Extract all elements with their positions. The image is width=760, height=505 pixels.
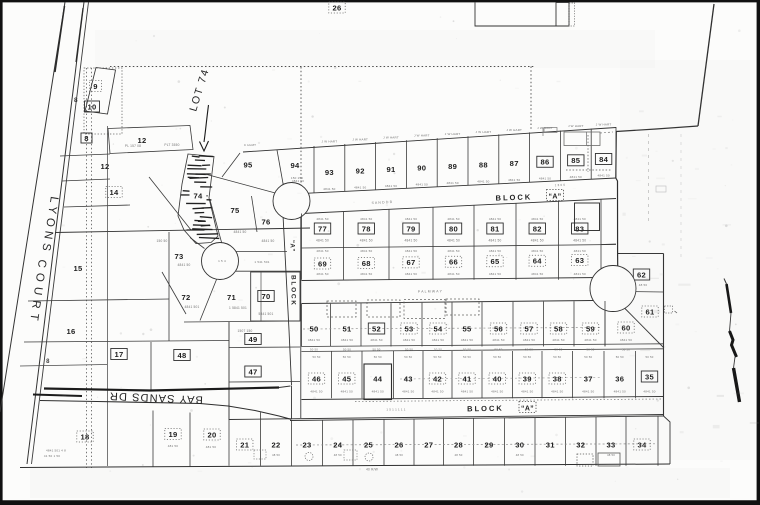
svg-text:21: 21: [240, 440, 250, 449]
svg-text:47: 47: [248, 367, 257, 376]
svg-text:8: 8: [74, 97, 78, 104]
svg-text:50 50: 50 50: [405, 348, 413, 352]
svg-text:50 50: 50 50: [553, 355, 561, 359]
svg-text:26: 26: [394, 440, 403, 449]
svg-text:63: 63: [575, 256, 584, 265]
svg-text:4841 50: 4841 50: [405, 239, 418, 243]
svg-text:1507 150: 1507 150: [238, 329, 253, 333]
svg-text:50 50: 50 50: [525, 348, 533, 352]
svg-text:9: 9: [93, 82, 98, 91]
svg-text:4841 50: 4841 50: [531, 217, 543, 221]
svg-text:150 150: 150 150: [291, 176, 303, 180]
svg-text:50 50: 50 50: [463, 348, 471, 352]
svg-text:65: 65: [490, 257, 500, 266]
svg-text:52: 52: [372, 324, 381, 333]
svg-text:1 5841 501: 1 5841 501: [229, 306, 247, 310]
svg-text:50 50: 50 50: [523, 355, 531, 359]
svg-text:4841 50: 4841 50: [262, 239, 275, 243]
svg-text:17: 17: [114, 350, 123, 359]
svg-text:4841 50: 4841 50: [531, 272, 543, 276]
svg-text:41 50 1 50: 41 50 1 50: [44, 454, 60, 458]
svg-text:4841 50: 4841 50: [574, 217, 586, 221]
svg-text:22: 22: [271, 440, 280, 449]
svg-text:55: 55: [462, 324, 472, 333]
svg-text:PL 157 08: PL 157 08: [125, 144, 141, 148]
svg-text:54: 54: [433, 324, 443, 333]
svg-text:27: 27: [424, 440, 433, 449]
svg-text:4841 50: 4841 50: [431, 390, 443, 394]
svg-text:4841 50: 4841 50: [234, 230, 247, 234]
svg-text:19: 19: [168, 430, 177, 439]
svg-text:4841 50: 4841 50: [461, 338, 473, 342]
svg-text:4841 50: 4841 50: [341, 390, 353, 394]
svg-text:73: 73: [174, 252, 183, 261]
svg-text:48 50: 48 50: [272, 453, 280, 457]
svg-text:43: 43: [404, 374, 413, 383]
svg-text:49: 49: [248, 335, 257, 344]
svg-text:48: 48: [177, 351, 186, 360]
svg-text:57: 57: [524, 324, 533, 333]
svg-text:4841 50: 4841 50: [477, 180, 489, 184]
svg-text:39: 39: [523, 374, 532, 383]
svg-text:“A”: “A”: [521, 406, 534, 413]
svg-text:4841 50: 4841 50: [447, 239, 460, 243]
svg-text:50 50: 50 50: [374, 355, 382, 359]
svg-text:4841 50: 4841 50: [574, 249, 586, 253]
svg-text:8: 8: [46, 359, 50, 365]
svg-text:64: 64: [533, 257, 543, 266]
svg-text:37: 37: [584, 374, 593, 383]
svg-text:86: 86: [540, 158, 549, 167]
svg-text:75: 75: [230, 206, 240, 215]
svg-text:J W HART: J W HART: [414, 134, 430, 138]
svg-text:50 50: 50 50: [343, 355, 351, 359]
svg-text:29: 29: [484, 440, 493, 449]
svg-text:4841 50: 4841 50: [489, 249, 501, 253]
svg-text:58: 58: [554, 324, 563, 333]
svg-text:50 50: 50 50: [343, 348, 351, 352]
svg-text:J W HART: J W HART: [383, 136, 399, 140]
svg-text:67: 67: [406, 258, 415, 267]
svg-text:83: 83: [575, 224, 584, 233]
svg-text:23: 23: [302, 440, 311, 449]
svg-text:J W HART: J W HART: [476, 130, 492, 134]
svg-text:4841 50: 4841 50: [523, 338, 535, 342]
svg-text:4841 50: 4841 50: [551, 390, 563, 394]
svg-text:31: 31: [546, 440, 556, 449]
svg-text:26: 26: [332, 3, 341, 12]
svg-text:“A”: “A”: [289, 240, 295, 252]
svg-text:77: 77: [318, 224, 327, 233]
svg-text:4841 50: 4841 50: [308, 338, 320, 342]
svg-text:4841 50: 4841 50: [372, 390, 384, 394]
svg-text:90: 90: [417, 164, 426, 173]
svg-text:“A”: “A”: [549, 194, 562, 201]
svg-text:1 3 0 0: 1 3 0 0: [555, 183, 566, 188]
svg-text:4841 50: 4841 50: [574, 272, 586, 276]
svg-text:4841 50: 4841 50: [360, 239, 373, 243]
svg-text:14: 14: [109, 188, 119, 197]
svg-text:50 50: 50 50: [584, 355, 592, 359]
svg-text:94: 94: [290, 161, 300, 170]
svg-text:89: 89: [448, 162, 457, 171]
svg-text:4841 50: 4841 50: [570, 175, 582, 179]
svg-text:J W HART: J W HART: [596, 122, 612, 126]
svg-text:481 50: 481 50: [206, 445, 217, 449]
svg-text:4841 50: 4841 50: [539, 176, 551, 180]
svg-text:4841 50: 4841 50: [403, 338, 415, 342]
svg-text:79: 79: [406, 224, 415, 233]
svg-text:4841 50: 4841 50: [447, 272, 459, 276]
svg-text:4841 50: 4841 50: [405, 217, 417, 221]
svg-text:4841 50: 4841 50: [461, 390, 473, 394]
svg-text:76: 76: [261, 217, 270, 226]
svg-text:4841 50: 4841 50: [492, 338, 504, 342]
svg-text:4841 50: 4841 50: [405, 272, 417, 276]
svg-text:4841 50: 4841 50: [582, 390, 594, 394]
svg-text:4841 50: 4841 50: [508, 178, 520, 182]
svg-text:J W HART: J W HART: [445, 132, 461, 136]
svg-text:44: 44: [373, 374, 383, 383]
svg-text:12: 12: [100, 162, 109, 171]
svg-text:16: 16: [66, 327, 75, 336]
svg-text:BLOCK: BLOCK: [495, 192, 532, 202]
svg-text:28: 28: [454, 440, 463, 449]
svg-text:BLOCK: BLOCK: [290, 275, 297, 307]
svg-text:4841 50: 4841 50: [489, 217, 501, 221]
svg-text:93: 93: [325, 168, 334, 177]
svg-text:4841 50: 4841 50: [178, 263, 191, 267]
svg-text:18: 18: [80, 432, 89, 441]
svg-text:4841 501: 4841 501: [185, 305, 200, 309]
svg-text:4841 50: 4841 50: [360, 249, 372, 253]
svg-text:50 50: 50 50: [493, 355, 501, 359]
svg-text:5841 501: 5841 501: [259, 312, 274, 316]
svg-text:68: 68: [362, 259, 371, 268]
svg-text:J W HART: J W HART: [537, 126, 553, 130]
svg-text:4841 50: 4841 50: [489, 239, 502, 243]
svg-text:50 50: 50 50: [463, 355, 471, 359]
svg-text:4841 50: 4841 50: [323, 187, 335, 191]
svg-text:4841 50: 4841 50: [489, 272, 501, 276]
svg-text:20: 20: [207, 430, 216, 439]
svg-text:48 50: 48 50: [516, 453, 524, 457]
svg-text:82: 82: [533, 224, 542, 233]
svg-text:50 50: 50 50: [310, 348, 318, 352]
svg-text:42: 42: [433, 374, 442, 383]
svg-text:84: 84: [599, 155, 609, 164]
svg-text:4841 50: 4841 50: [531, 239, 544, 243]
svg-text:4841 50: 4841 50: [360, 272, 372, 276]
svg-text:8: 8: [84, 134, 89, 143]
svg-text:4841 50: 4841 50: [584, 338, 596, 342]
svg-text:150 50: 150 50: [157, 239, 168, 243]
svg-text:48 50: 48 50: [395, 453, 403, 457]
svg-text:71: 71: [227, 293, 237, 302]
svg-text:4841 50: 4841 50: [447, 217, 459, 221]
svg-text:4841 50: 4841 50: [385, 184, 397, 188]
svg-text:32: 32: [576, 440, 585, 449]
svg-text:4841 50: 4841 50: [310, 390, 322, 394]
svg-text:51: 51: [342, 324, 352, 333]
svg-text:J W HART: J W HART: [352, 138, 368, 142]
svg-text:4841 50: 4841 50: [341, 338, 353, 342]
svg-text:4841 50: 4841 50: [446, 181, 458, 185]
svg-text:85: 85: [571, 156, 581, 165]
svg-text:74: 74: [193, 192, 203, 201]
svg-text:50: 50: [309, 324, 318, 333]
svg-text:1 5 4: 1 5 4: [218, 259, 226, 263]
svg-text:4841 50: 4841 50: [491, 390, 503, 394]
svg-text:50 50: 50 50: [373, 348, 381, 352]
svg-text:48 50: 48 50: [607, 453, 615, 457]
svg-text:1 541 501: 1 541 501: [254, 260, 269, 264]
svg-text:50 50: 50 50: [555, 348, 563, 352]
svg-text:4841 50: 4841 50: [316, 272, 328, 276]
svg-text:72: 72: [181, 293, 190, 302]
svg-text:4841 50: 4841 50: [402, 390, 414, 394]
svg-text:50 50: 50 50: [434, 355, 442, 359]
svg-text:50 50: 50 50: [313, 355, 321, 359]
svg-text:4841 50: 4841 50: [432, 338, 444, 342]
svg-text:J W HART: J W HART: [506, 128, 522, 132]
svg-text:45: 45: [342, 374, 352, 383]
svg-text:38: 38: [553, 374, 562, 383]
svg-text:40: 40: [493, 374, 502, 383]
svg-text:50 50: 50 50: [434, 348, 442, 352]
svg-text:56: 56: [494, 324, 503, 333]
svg-text:53: 53: [404, 324, 413, 333]
svg-text:4841 50: 4841 50: [370, 338, 382, 342]
svg-text:4841 50: 4841 50: [597, 174, 609, 178]
svg-text:48 50: 48 50: [455, 453, 463, 457]
svg-text:88: 88: [479, 161, 488, 170]
svg-text:66: 66: [449, 258, 458, 267]
svg-text:41: 41: [462, 374, 472, 383]
svg-text:BLOCK: BLOCK: [467, 404, 504, 414]
svg-text:4841 50: 4841 50: [521, 390, 533, 394]
svg-text:4841 50: 4841 50: [316, 217, 328, 221]
svg-text:80: 80: [449, 224, 458, 233]
svg-text:81: 81: [490, 224, 500, 233]
svg-text:4841 50: 4841 50: [531, 249, 543, 253]
svg-text:PLT 3550: PLT 3550: [164, 143, 179, 147]
svg-text:4841 50: 4841 50: [552, 338, 564, 342]
svg-text:4841 50: 4841 50: [354, 186, 366, 190]
svg-text:4841 50: 4841 50: [316, 239, 329, 243]
svg-text:46: 46: [312, 374, 321, 383]
svg-text:15: 15: [73, 264, 83, 273]
svg-text:87: 87: [510, 159, 519, 168]
svg-text:95: 95: [243, 160, 253, 169]
svg-text:C HLMT: C HLMT: [244, 143, 256, 147]
svg-text:50 50: 50 50: [495, 348, 503, 352]
svg-text:4841 501 4 8: 4841 501 4 8: [46, 449, 66, 453]
svg-text:481 50: 481 50: [168, 444, 179, 448]
svg-text:50 50: 50 50: [587, 348, 595, 352]
svg-text:4841 50: 4841 50: [573, 239, 586, 243]
svg-text:10: 10: [87, 102, 96, 111]
svg-text:92: 92: [356, 166, 365, 175]
svg-text:4841 50: 4841 50: [405, 249, 417, 253]
svg-text:P A L M W A Y: P A L M W A Y: [418, 289, 443, 293]
svg-text:69: 69: [318, 259, 327, 268]
svg-text:4841 50: 4841 50: [316, 249, 328, 253]
svg-text:50 50: 50 50: [404, 355, 412, 359]
svg-text:48 50: 48 50: [334, 453, 342, 457]
svg-text:4841 50: 4841 50: [447, 249, 459, 253]
svg-text:70: 70: [261, 292, 270, 301]
svg-text:J W HART: J W HART: [322, 140, 338, 144]
svg-text:59: 59: [586, 324, 595, 333]
svg-text:4841 50: 4841 50: [416, 183, 428, 187]
svg-text:25: 25: [364, 440, 374, 449]
svg-text:30: 30: [515, 440, 524, 449]
svg-text:33: 33: [606, 440, 615, 449]
svg-text:1 5 1 1 1 1 1: 1 5 1 1 1 1 1: [386, 408, 405, 412]
svg-text:J W HART: J W HART: [568, 124, 584, 128]
svg-text:24: 24: [333, 440, 343, 449]
svg-text:4841 50: 4841 50: [360, 217, 372, 221]
svg-text:78: 78: [362, 224, 371, 233]
